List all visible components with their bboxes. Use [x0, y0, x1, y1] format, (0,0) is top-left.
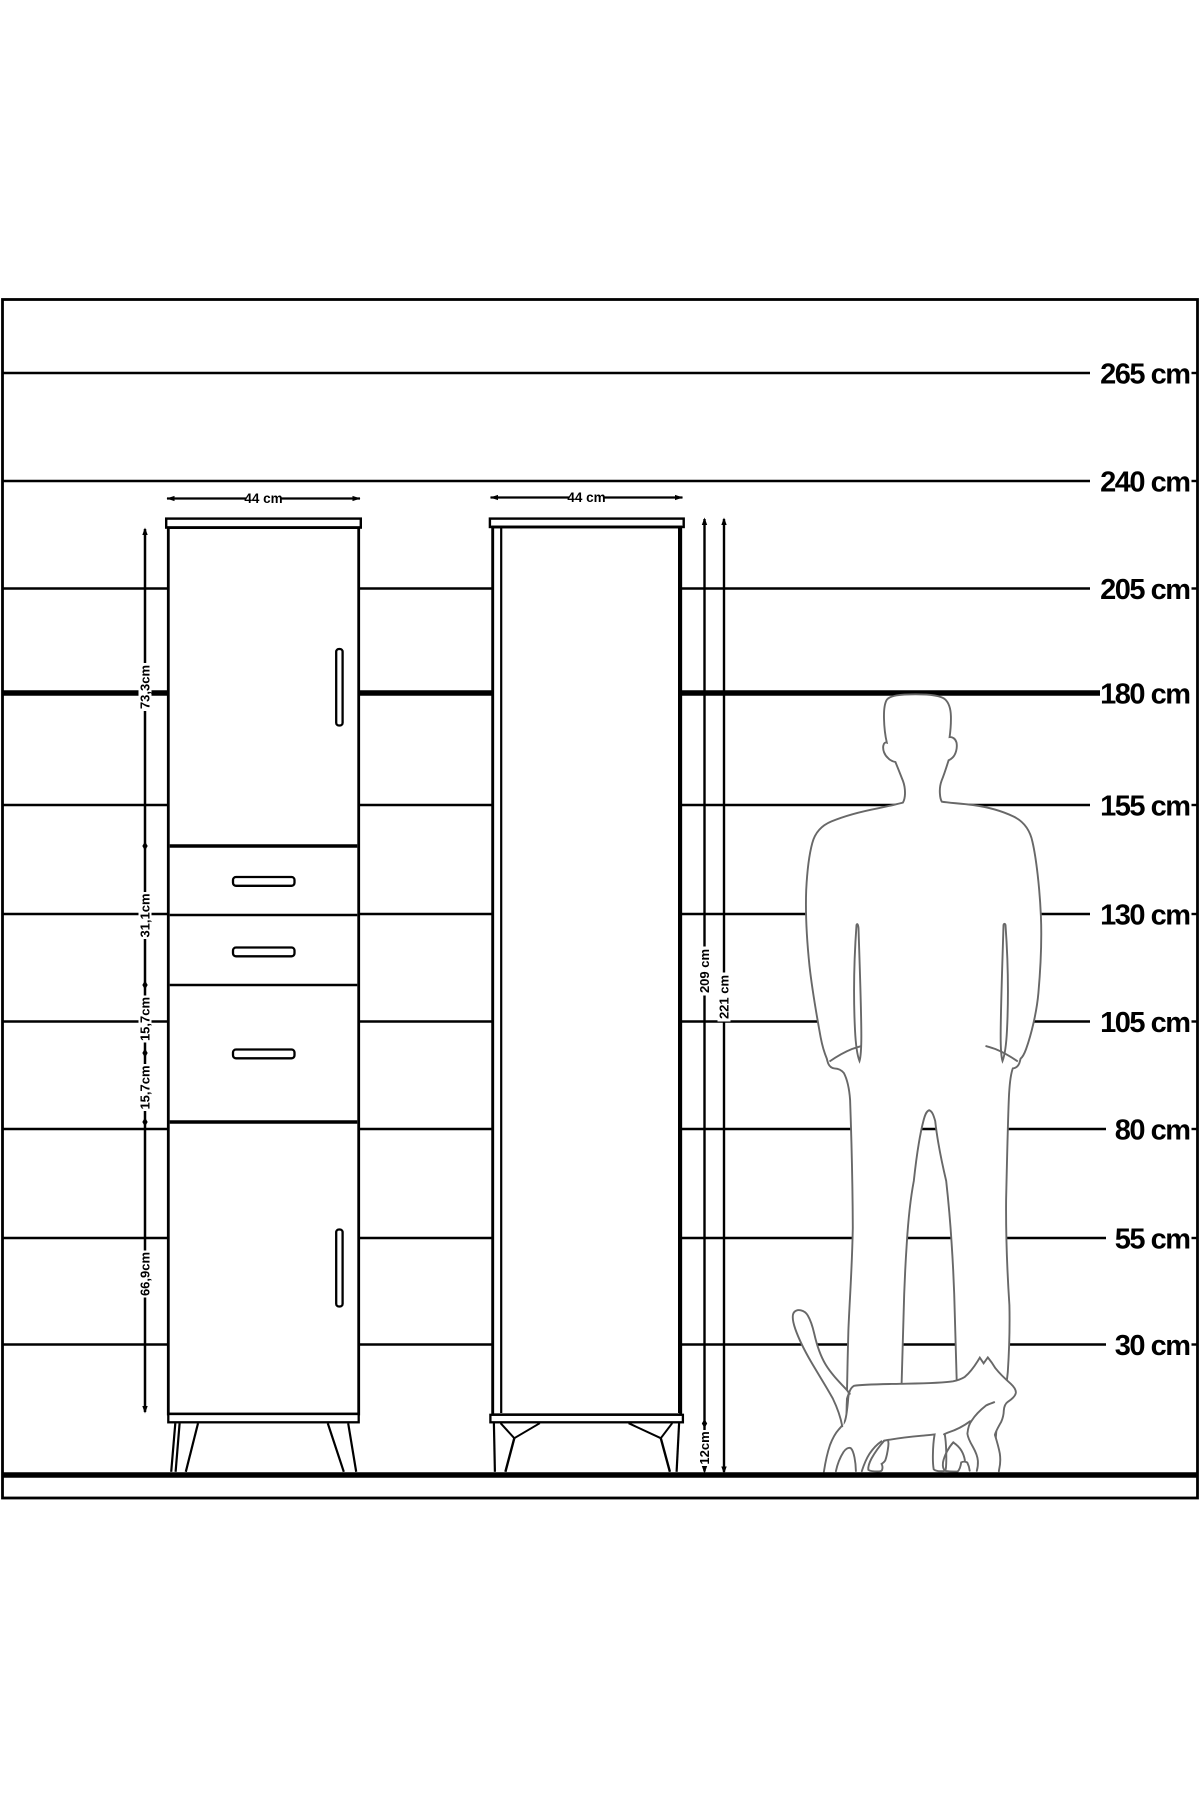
- svg-text:30 cm: 30 cm: [1115, 1330, 1190, 1362]
- svg-text:221 cm: 221 cm: [717, 975, 732, 1019]
- svg-text:66,9cm: 66,9cm: [138, 1252, 153, 1296]
- svg-text:44 cm: 44 cm: [244, 491, 282, 506]
- svg-text:73,3cm: 73,3cm: [138, 665, 153, 709]
- svg-text:31,1cm: 31,1cm: [138, 893, 153, 937]
- svg-text:205 cm: 205 cm: [1100, 574, 1189, 606]
- svg-text:180 cm: 180 cm: [1100, 679, 1189, 711]
- svg-text:44 cm: 44 cm: [567, 490, 605, 505]
- svg-text:240 cm: 240 cm: [1100, 467, 1189, 499]
- svg-text:55 cm: 55 cm: [1115, 1224, 1190, 1256]
- svg-text:130 cm: 130 cm: [1100, 900, 1189, 932]
- svg-text:155 cm: 155 cm: [1100, 791, 1189, 823]
- svg-text:15,7cm: 15,7cm: [138, 997, 153, 1041]
- svg-text:80 cm: 80 cm: [1115, 1115, 1190, 1147]
- svg-text:265 cm: 265 cm: [1100, 359, 1189, 391]
- svg-text:209 cm: 209 cm: [697, 949, 712, 993]
- svg-text:15,7cm: 15,7cm: [138, 1065, 153, 1109]
- svg-text:105 cm: 105 cm: [1100, 1007, 1189, 1039]
- svg-text:12cm: 12cm: [697, 1431, 712, 1464]
